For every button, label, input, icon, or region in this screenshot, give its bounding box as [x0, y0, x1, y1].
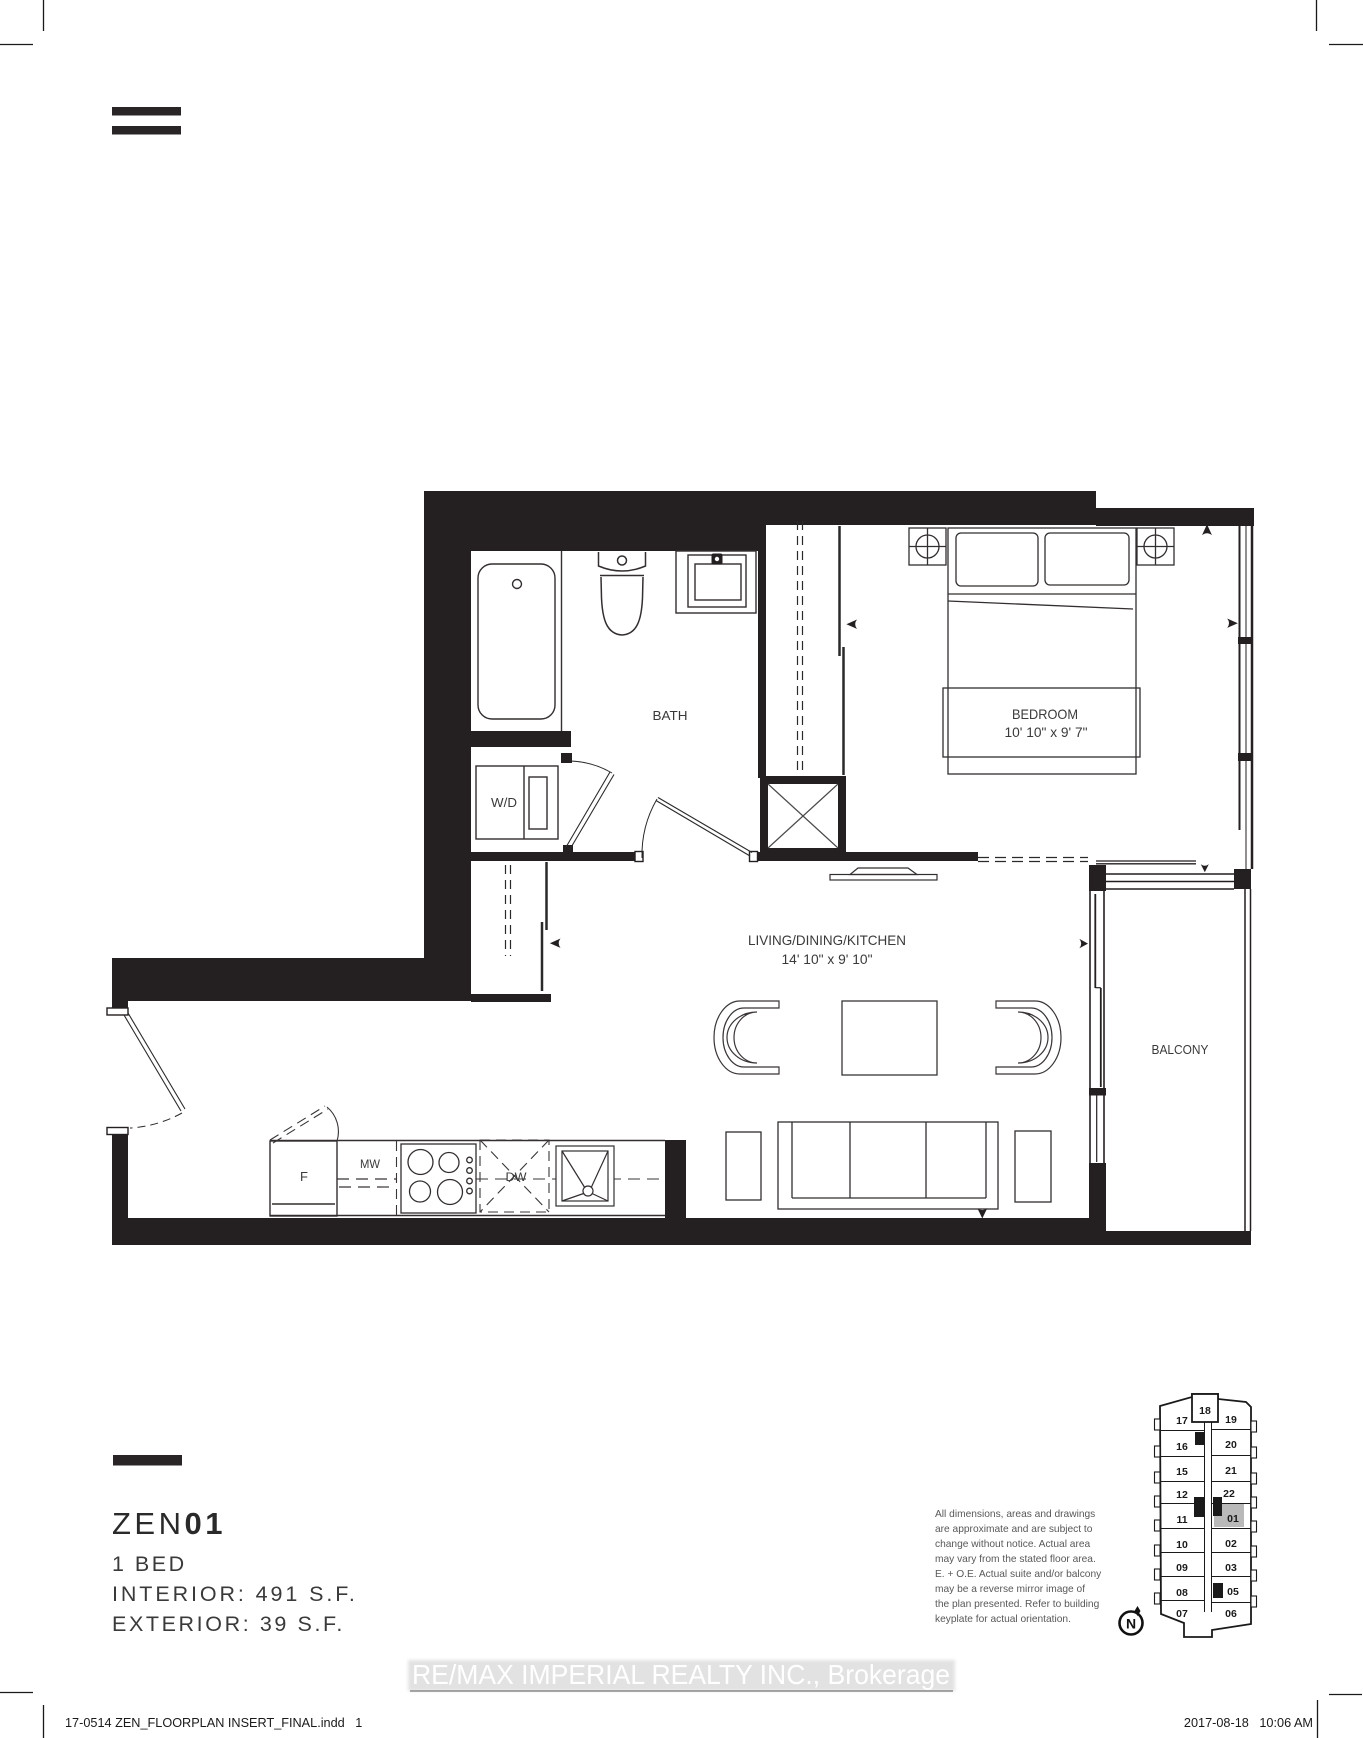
svg-text:INTERIOR: 491 S.F.: INTERIOR: 491 S.F. [112, 1582, 358, 1606]
svg-text:07: 07 [1176, 1608, 1188, 1620]
svg-text:05: 05 [1227, 1586, 1239, 1598]
svg-text:change without notice. Actual: change without notice. Actual area [935, 1539, 1091, 1550]
svg-text:keyplate for actual orientatio: keyplate for actual orientation. [935, 1614, 1071, 1625]
svg-text:All dimensions, areas and draw: All dimensions, areas and drawings [935, 1509, 1095, 1520]
svg-text:06: 06 [1225, 1608, 1237, 1620]
svg-text:may be a reverse mirror image: may be a reverse mirror image of [935, 1584, 1085, 1595]
svg-text:BATH: BATH [653, 708, 688, 723]
svg-text:are approximate and are subjec: are approximate and are subject to [935, 1524, 1093, 1535]
svg-text:E. + O.E. Actual suite and/or: E. + O.E. Actual suite and/or balcony [935, 1569, 1102, 1580]
svg-text:19: 19 [1225, 1414, 1237, 1426]
svg-text:F: F [300, 1169, 308, 1184]
svg-text:2017-08-18 10:06 AM: 2017-08-18 10:06 AM [1184, 1716, 1313, 1730]
svg-text:10' 10" x 9' 7": 10' 10" x 9' 7" [1005, 725, 1088, 740]
svg-text:ZEN01: ZEN01 [112, 1506, 226, 1541]
svg-text:W/D: W/D [491, 796, 517, 810]
svg-text:20: 20 [1225, 1439, 1237, 1451]
svg-text:1 BED: 1 BED [112, 1552, 187, 1576]
svg-text:N: N [1126, 1616, 1136, 1632]
svg-text:MW: MW [360, 1159, 380, 1171]
svg-text:14' 10" x 9' 10": 14' 10" x 9' 10" [782, 952, 873, 967]
svg-text:12: 12 [1176, 1489, 1188, 1501]
svg-text:the plan presented. Refer to b: the plan presented. Refer to building [935, 1599, 1100, 1610]
svg-text:22: 22 [1223, 1488, 1235, 1500]
svg-text:RE/MAX IMPERIAL REALTY INC., B: RE/MAX IMPERIAL REALTY INC., Brokerage [412, 1659, 950, 1690]
svg-text:10: 10 [1176, 1539, 1188, 1551]
svg-text:08: 08 [1176, 1587, 1188, 1599]
svg-text:BALCONY: BALCONY [1152, 1042, 1209, 1057]
svg-text:may vary from the stated floor: may vary from the stated floor area. [935, 1554, 1096, 1565]
svg-text:02: 02 [1225, 1538, 1237, 1550]
svg-text:11: 11 [1176, 1514, 1187, 1526]
svg-text:15: 15 [1176, 1466, 1188, 1478]
svg-text:21: 21 [1225, 1465, 1237, 1477]
svg-text:LIVING/DINING/KITCHEN: LIVING/DINING/KITCHEN [748, 932, 906, 948]
svg-text:BEDROOM: BEDROOM [1012, 706, 1078, 722]
svg-text:DW: DW [506, 1170, 528, 1184]
svg-text:EXTERIOR: 39 S.F.: EXTERIOR: 39 S.F. [112, 1612, 345, 1636]
svg-text:18: 18 [1199, 1405, 1211, 1417]
svg-text:17-0514 ZEN_FLOORPLAN INSERT_F: 17-0514 ZEN_FLOORPLAN INSERT_FINAL.indd … [65, 1716, 362, 1730]
svg-text:09: 09 [1176, 1562, 1188, 1574]
svg-text:03: 03 [1225, 1562, 1237, 1574]
svg-text:17: 17 [1176, 1415, 1188, 1427]
svg-text:16: 16 [1176, 1441, 1188, 1453]
svg-text:01: 01 [1227, 1513, 1239, 1525]
